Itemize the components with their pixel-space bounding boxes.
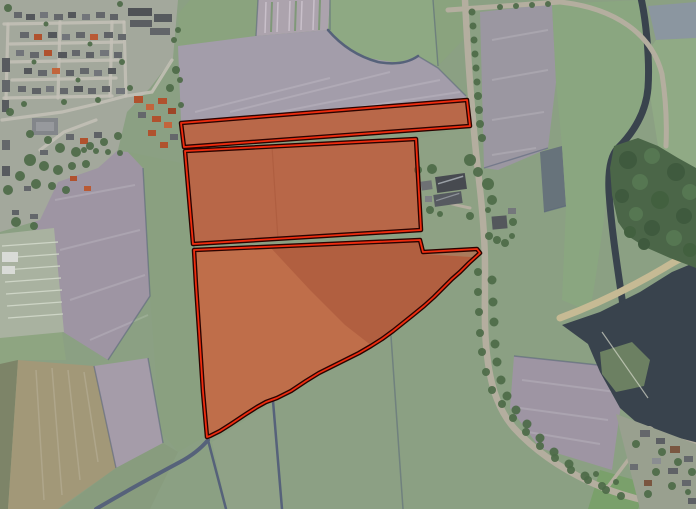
aerial-map-canvas[interactable]: [0, 0, 696, 509]
farm-shed: [420, 180, 432, 190]
aerial-map-view[interactable]: [0, 0, 696, 509]
parcel-highlight-middle[interactable]: [185, 139, 421, 244]
large-building-roof-detail: [36, 122, 54, 131]
farm-house: [492, 215, 508, 229]
greenhouse-plots: [0, 228, 64, 338]
